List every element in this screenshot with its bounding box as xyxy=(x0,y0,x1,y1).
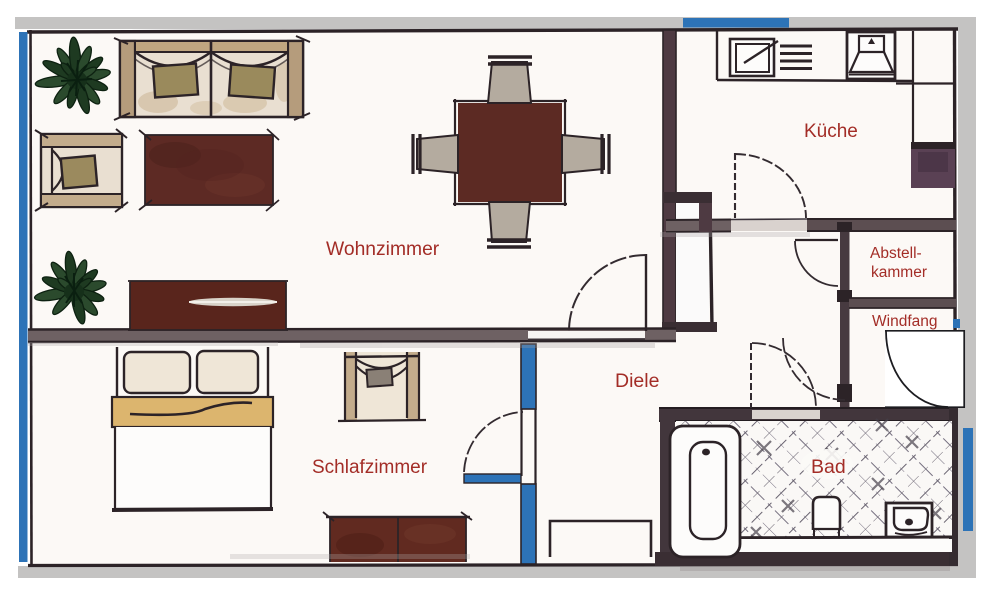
svg-text:Küche: Küche xyxy=(804,121,858,142)
svg-text:Diele: Diele xyxy=(615,370,659,392)
svg-text:Abstell-: Abstell- xyxy=(870,245,922,262)
svg-text:Wohnzimmer: Wohnzimmer xyxy=(326,239,440,260)
svg-text:Schlafzimmer: Schlafzimmer xyxy=(312,457,428,478)
svg-text:kammer: kammer xyxy=(871,264,927,281)
svg-text:Windfang: Windfang xyxy=(872,313,937,330)
svg-text:Bad: Bad xyxy=(811,456,846,478)
